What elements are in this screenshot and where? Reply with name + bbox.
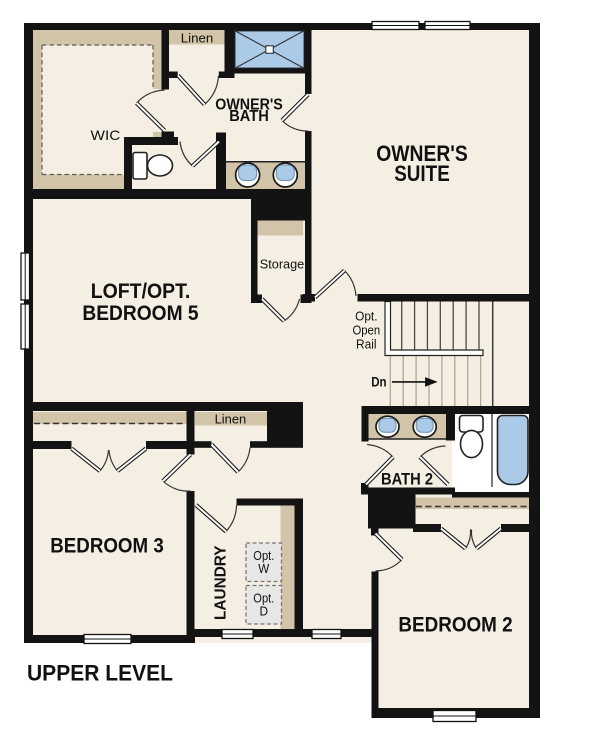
- svg-text:Opt.: Opt.: [355, 309, 377, 323]
- svg-text:Opt.: Opt.: [253, 549, 274, 563]
- svg-text:SUITE: SUITE: [394, 161, 450, 186]
- svg-text:BATH 2: BATH 2: [381, 471, 433, 489]
- svg-text:LOFT/OPT.: LOFT/OPT.: [91, 280, 191, 303]
- svg-text:BEDROOM 3: BEDROOM 3: [50, 535, 164, 558]
- svg-text:Linen: Linen: [181, 32, 214, 46]
- svg-text:Opt.: Opt.: [253, 592, 274, 606]
- svg-text:Storage: Storage: [260, 256, 305, 271]
- svg-text:W: W: [258, 562, 269, 576]
- svg-text:LAUNDRY: LAUNDRY: [213, 545, 230, 620]
- svg-text:D: D: [260, 605, 269, 619]
- svg-text:BEDROOM 5: BEDROOM 5: [82, 302, 198, 325]
- svg-text:BEDROOM 2: BEDROOM 2: [398, 613, 512, 636]
- svg-text:UPPER LEVEL: UPPER LEVEL: [27, 661, 173, 686]
- svg-text:Linen: Linen: [215, 413, 247, 427]
- svg-text:Open: Open: [352, 324, 380, 338]
- svg-text:WIC: WIC: [91, 127, 121, 143]
- svg-text:BATH: BATH: [229, 108, 269, 125]
- svg-text:Dn: Dn: [371, 375, 386, 390]
- svg-text:Rail: Rail: [356, 337, 377, 351]
